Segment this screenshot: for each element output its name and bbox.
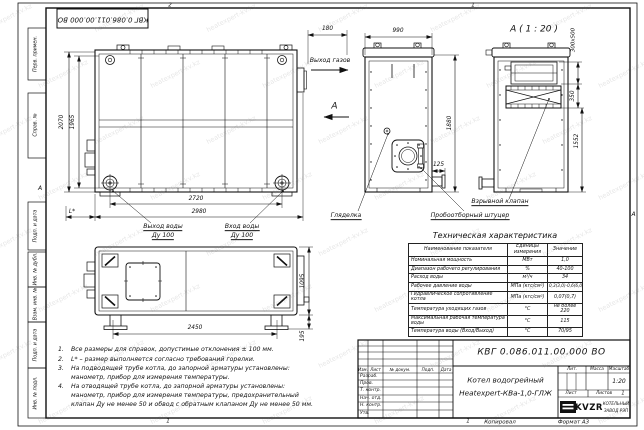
- tech-cell: 70/95: [548, 327, 583, 336]
- note-3-text-line2: манометр, прибор для измерения температу…: [71, 374, 290, 383]
- dim-l-star: L*: [69, 210, 75, 216]
- dim-front-width-inner: 2720: [189, 197, 204, 203]
- sheet-label: Лист: [566, 391, 577, 395]
- mass-label: Масса: [590, 367, 604, 371]
- company-name-line1: КОТЕЛЬНЫЙ: [603, 402, 630, 406]
- section-a-letter: А: [331, 102, 337, 111]
- tech-cell: МПа (кгс/см²): [508, 291, 548, 303]
- margin-label-inv-dubl: Инв. № дубл.: [35, 253, 40, 286]
- notes-list: 1. Все размеры для справок, допустимые о…: [58, 346, 360, 410]
- tech-cell: °С: [508, 315, 548, 327]
- margin-label-perv-primen: Перв. примен.: [35, 36, 40, 72]
- note-1-number: 1.: [58, 346, 71, 355]
- note-3-number: 3.: [58, 365, 71, 382]
- plan-view-linework: [84, 247, 309, 330]
- dim-plan-width: 2450: [188, 326, 203, 332]
- top-left-stamp: КВГ 0.086.011.00.000 ВО: [57, 15, 148, 22]
- zone-mark-side-right: А: [631, 212, 635, 218]
- note-2-text: L* – размер выполняется согласно требова…: [71, 356, 255, 365]
- water-out-size: Ду 100: [152, 233, 174, 241]
- tech-cell: не более 220: [548, 303, 583, 315]
- tech-cell: %: [508, 265, 548, 274]
- tech-cell: 1,0: [548, 257, 583, 266]
- role-utv: Утв.: [360, 412, 369, 417]
- dim-valve-offset: 350: [571, 90, 577, 101]
- margin-label-sprav-no: Справ. №: [35, 113, 40, 136]
- margin-label-podp-data-2: Подп. и дата: [35, 329, 40, 362]
- tech-table-header-row: Наименование показателя Единицы измерени…: [409, 244, 583, 257]
- tech-cell: Рабочее давление воды: [409, 283, 508, 292]
- note-4-text-line3: клапан Ду не менее 50 и обвод с обратным…: [71, 401, 313, 410]
- tech-cell: Диапазон рабочего регулирования: [409, 265, 508, 274]
- dim-front-width: 2980: [192, 210, 207, 216]
- dim-valve-size: 300х500: [571, 28, 577, 52]
- format-label: Формат А3: [558, 420, 589, 426]
- role-razrab: Разраб.: [360, 374, 378, 379]
- zone-mark-top-right: 1: [471, 3, 475, 9]
- col-dokum: № докум.: [390, 367, 411, 371]
- front-view-linework: [85, 45, 307, 196]
- tech-table-title: Техническая характеристика: [433, 232, 557, 240]
- dim-front-height-inner: 1965: [71, 115, 77, 130]
- tech-cell: 0,3(3,0)-0,6(6,0): [548, 283, 583, 292]
- tech-cell: Максимальная рабочая температура воды: [409, 315, 508, 327]
- tech-row-max-temp: Максимальная рабочая температура воды°С1…: [409, 315, 583, 327]
- tech-row-gas-temp: Температура уходящих газов°Сне более 220: [409, 303, 583, 315]
- zone-mark-top-left: 2: [168, 3, 172, 9]
- tech-cell: Гидравлическое сопротивление котла: [409, 291, 508, 303]
- water-out-label: Выход воды: [143, 224, 182, 232]
- tech-cell: Номинальная мощность: [409, 257, 508, 266]
- col-data: Дата: [441, 367, 452, 371]
- company-name-line2: ЗАВОД РЭП: [604, 409, 628, 413]
- role-n-kontr: Н. контр.: [360, 404, 382, 409]
- tech-row-inout-temp: Температура воды (Вход/Выход)°С70/95: [409, 327, 583, 336]
- tech-cell: МВт: [508, 257, 548, 266]
- scale-value: 1:20: [612, 379, 625, 385]
- tech-cell: Температура уходящих газов: [409, 303, 508, 315]
- margin-label-podp-data-1: Подп. и дата: [35, 210, 40, 243]
- margin-label-inv-podl: Инв. № подл.: [35, 376, 40, 409]
- role-t-kontr: Т. контр.: [360, 389, 381, 394]
- zone-mark-bottom-left: 1: [166, 419, 170, 425]
- tech-cell: Температура воды (Вход/Выход): [409, 327, 508, 336]
- detail-view-title: А ( 1 : 20 ): [510, 26, 558, 35]
- tech-row-resistance: Гидравлическое сопротивление котлаМПа (к…: [409, 291, 583, 303]
- water-in-size: Ду 100: [231, 233, 253, 241]
- tech-col-name: Наименование показателя: [409, 244, 508, 257]
- water-in-label: Вход воды: [225, 224, 260, 232]
- drawing-sheet: { "watermark": {"text": "heatexpert-kv.k…: [0, 0, 644, 430]
- note-4-text-line2: манометр, прибор для измерения температу…: [71, 392, 313, 401]
- doc-number: КВГ 0.086.011.00.000 ВО: [477, 349, 605, 358]
- note-2-number: 2.: [58, 356, 71, 365]
- dim-front-height: 2070: [60, 115, 66, 130]
- side-view-linework: [363, 43, 445, 192]
- company-logo-text: KVZR: [575, 403, 603, 412]
- tech-cell: Расход воды: [409, 274, 508, 283]
- note-4-number: 4.: [58, 383, 71, 409]
- zone-mark-bottom-right: 1: [466, 419, 470, 425]
- probe-fitting-label: Пробоотборный штуцер: [431, 213, 510, 221]
- note-3-text-line1: На подводящей трубе котла, до запорной а…: [71, 365, 290, 374]
- tech-cell: МПа (кгс/см²): [508, 283, 548, 292]
- note-2: 2. L* – размер выполняется согласно треб…: [58, 356, 360, 365]
- product-name-line1: Котел водогрейный: [467, 376, 544, 383]
- note-1-text: Все размеры для справок, допустимые откл…: [71, 346, 274, 355]
- lit-label: Лит.: [567, 367, 577, 371]
- product-name-line2: Heatexpert-КВа-1,0-ГЛЖ: [459, 389, 552, 396]
- role-prov: Пров.: [360, 381, 373, 386]
- dim-detail-height: 1552: [575, 134, 581, 149]
- tech-row-flow: Расход водым³/ч34: [409, 274, 583, 283]
- tech-cell: 0,07(0,7): [548, 291, 583, 303]
- zone-mark-side-left: А: [38, 186, 42, 192]
- note-4-text-line1: На отводящей трубе котла, до запорной ар…: [71, 383, 313, 392]
- note-1: 1. Все размеры для справок, допустимые о…: [58, 346, 360, 355]
- sheets-value: 1: [621, 391, 624, 396]
- tech-table: Наименование показателя Единицы измерени…: [408, 243, 583, 337]
- tech-cell: 115: [548, 315, 583, 327]
- copied-label: Копировал: [484, 420, 515, 426]
- tech-row-power: Номинальная мощностьМВт1,0: [409, 257, 583, 266]
- dim-gas-offset: 180: [322, 27, 333, 33]
- sight-glass-label: Гляделка: [331, 213, 362, 221]
- dim-plan-depth: 1095: [301, 274, 307, 289]
- scale-label: Масштаб: [609, 367, 629, 371]
- tech-cell: 40-100: [548, 265, 583, 274]
- tech-col-value: Значение: [548, 244, 583, 257]
- dim-plan-feet: 195: [301, 330, 307, 341]
- sheets-label: Листов: [596, 391, 612, 395]
- tech-cell: 34: [548, 274, 583, 283]
- tech-col-unit: Единицы измерения: [508, 244, 548, 257]
- gas-out-label: Выход газов: [310, 57, 351, 63]
- detail-view-linework: [479, 43, 570, 192]
- col-podp: Подп.: [422, 367, 435, 371]
- tech-cell: °С: [508, 303, 548, 315]
- dim-side-height: 1880: [448, 116, 454, 131]
- col-izm: Изм.: [358, 367, 368, 371]
- margin-label-vzam-inv: Взам. инв. №: [35, 288, 40, 321]
- tech-cell: м³/ч: [508, 274, 548, 283]
- tech-cell: °С: [508, 327, 548, 336]
- tech-row-range: Диапазон рабочего регулирования%40-100: [409, 265, 583, 274]
- dim-side-width: 990: [392, 29, 403, 35]
- dim-side-stub: 125: [433, 163, 444, 169]
- explosion-valve-label: Взрывной клапан: [471, 199, 528, 207]
- note-3: 3. На подводящей трубе котла, до запорно…: [58, 365, 360, 382]
- col-list: Лист: [370, 367, 381, 371]
- note-4: 4. На отводящей трубе котла, до запорной…: [58, 383, 360, 409]
- role-nach-otd: Нач. отд.: [360, 396, 382, 401]
- tech-row-pressure: Рабочее давление водыМПа (кгс/см²)0,3(3,…: [409, 283, 583, 292]
